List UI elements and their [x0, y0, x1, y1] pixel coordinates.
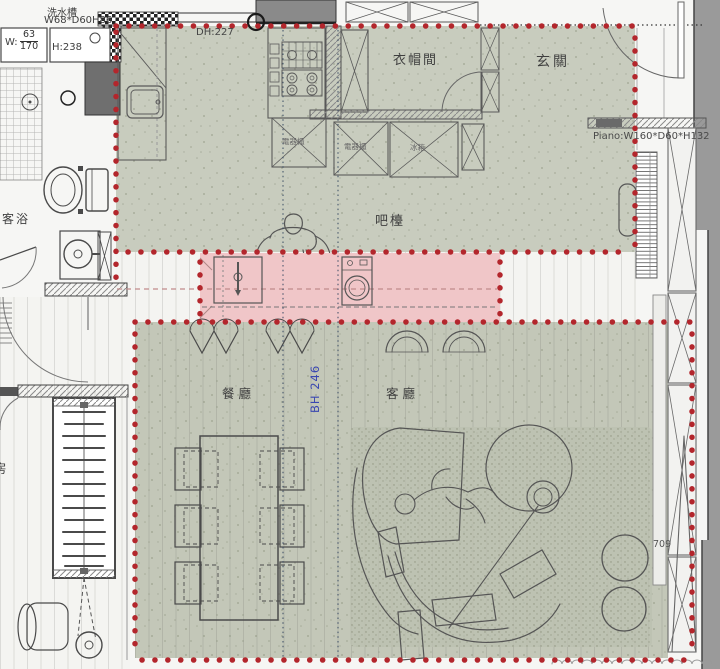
- window-width-prefix: W:: [5, 37, 18, 48]
- bath-south-wall: [45, 283, 127, 296]
- shower-tiles: [0, 68, 42, 180]
- room-label-guest-bath: 客浴: [2, 210, 30, 227]
- room-label-foyer: 玄關: [536, 51, 570, 71]
- room-north-wall: [18, 385, 128, 397]
- beam-height-note: BH 246: [308, 365, 322, 413]
- room-label-closet: 衣帽間: [393, 49, 438, 68]
- cabinet-label-fridge: 冰箱: [410, 142, 425, 153]
- floor-plan-canvas: [0, 0, 720, 669]
- closet-wall: [310, 110, 482, 119]
- piano-icon: [636, 152, 657, 278]
- room-label-room: 房: [0, 458, 7, 477]
- sink-note-line2: W68*D60H86: [44, 15, 112, 26]
- floor-plan-page: 洗水槽 W68*D60H86 W: 63 170 H:238 DH:227 衣帽…: [0, 0, 720, 669]
- cabinet-label-appliance-b: 電器櫃: [344, 141, 367, 152]
- room-label-bar: 吧檯: [375, 210, 405, 229]
- kitchen-wall: [326, 26, 341, 118]
- piano-dim-note: Piano:W160*D60*H132: [593, 131, 710, 142]
- dim-709-note: 709: [653, 539, 671, 550]
- room-label-dining: 餐廳: [222, 383, 255, 402]
- window-width-fraction: 63 170: [20, 30, 38, 53]
- room-label-living: 客廳: [386, 383, 419, 402]
- window-width-denominator: 170: [20, 42, 38, 53]
- door-height-note: DH:227: [196, 27, 234, 38]
- wardrobe-icon: [53, 398, 115, 578]
- cabinet-label-appliance-a: 電器櫃: [282, 136, 305, 147]
- height-note: H:238: [52, 42, 82, 53]
